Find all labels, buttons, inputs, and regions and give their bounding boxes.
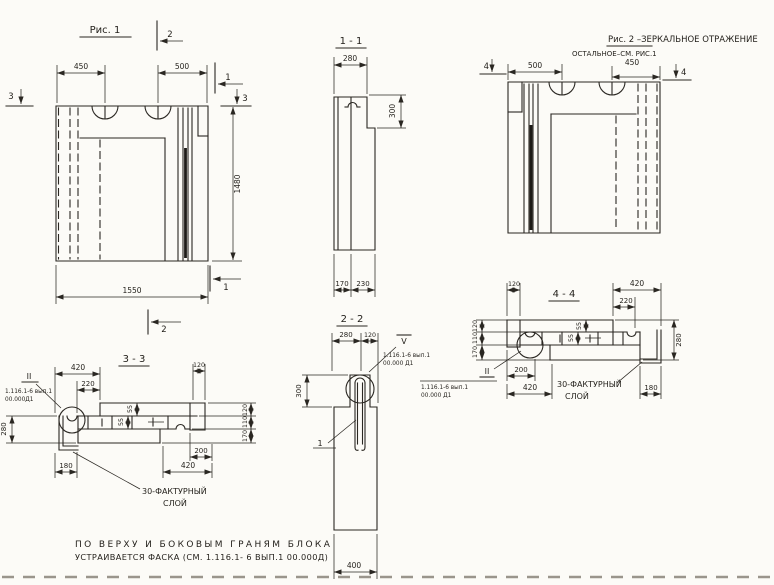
technical-drawing: Рис. 1 2 450 500 1 3 3 [0,0,774,585]
facing-layer-label: СЛОЙ [565,390,589,401]
dim-170-left: 170 [472,346,479,358]
section-label-3-left: 3 [8,92,13,102]
sec11-title: 1 - 1 [340,36,363,47]
groove-notch [176,425,185,430]
section-1-1: 1 - 1 280 300 170 230 [334,36,406,297]
dim-280-right: 280 [675,333,683,346]
loop-hook [362,447,365,450]
fig2-title: Рис. 2 –ЗЕРКАЛЬНОЕ ОТРАЖЕНИЕ [608,35,758,45]
leader-line [369,347,396,372]
corner-return-inner [640,330,657,359]
dim-420-top: 420 [630,279,645,288]
dim-420-top: 420 [71,363,86,372]
dim-55a: 55 [127,405,134,413]
fig2-mirrored-view: Рис. 2 –ЗЕРКАЛЬНОЕ ОТРАЖЕНИЕ ОСТАЛЬНОЕ–С… [480,35,758,233]
section-4-4: 4 - 4 120 420 220 [420,279,683,401]
dim-120-top: 120 [508,281,520,288]
section-label-2-top: 2 [167,30,172,40]
chamfer-note: ПО ВЕРХУ И БОКОВЫМ ГРАНЯМ БЛОКА УСТРАИВА… [75,540,332,562]
corner-return [640,330,661,363]
dim-180: 180 [644,384,657,392]
ref-text: 1.116.1-6 вып.1 [421,385,468,391]
blueprint-page: Рис. 1 2 450 500 1 3 3 [0,0,774,585]
dim-220: 220 [81,380,94,388]
dim-450: 450 [625,58,640,67]
sec22-title: 2 - 2 [341,314,364,325]
dim-280-left: 280 [0,422,8,435]
dim-280: 280 [343,54,358,63]
dim-55b: 55 [568,334,575,342]
dim-450: 450 [74,62,89,71]
facing-layer-label: 30-ФАКТУРНЫЙ [557,378,622,389]
fig2-subtitle: ОСТАЛЬНОЕ–СМ. РИС.1 [572,50,657,58]
sec44-title: 4 - 4 [553,289,576,300]
dim-55a: 55 [576,322,583,330]
dim-120-left: 120 [472,320,479,332]
dim-1550: 1550 [122,286,141,295]
detail-marker-II: II [27,372,32,381]
sec33-title: 3 - 3 [123,354,146,365]
section-profile [334,97,375,250]
section-label-4-left: 4 [484,62,489,72]
pos-label-1: 1 [317,439,322,448]
loop-hook [355,447,358,450]
section-label-3-right: 3 [242,94,247,104]
detail-marker-V: V [401,337,407,346]
dim-420-bottom: 420 [181,461,196,470]
dim-230: 230 [356,280,369,288]
section-label-2-bottom: 2 [161,325,166,335]
leader-line [73,452,140,489]
dim-500: 500 [175,62,190,71]
dim-280: 280 [339,331,352,339]
section-label-1-bottom: 1 [223,283,228,293]
dim-500: 500 [528,61,543,70]
dim-120-right: 120 [242,404,249,416]
lifting-loop [355,378,365,383]
facing-layer-label: СЛОЙ [163,497,187,508]
ref-text: 1.116.1-6 вып.1 [5,389,52,395]
dim-1480: 1480 [233,174,242,193]
ref-text: 1.116.1-6 вып.1 [383,353,430,359]
detail-marker-II: II [485,367,490,376]
dim-220: 220 [619,297,632,305]
ref-text: 00.000 Д1 [421,393,452,399]
note-line-2: УСТРАИВАЕТСЯ ФАСКА (СМ. 1.116.1- 6 ВЫП.1… [75,552,328,562]
dim-55b: 55 [118,418,125,426]
dim-110-right: 110 [242,416,249,428]
dim-200: 200 [194,447,207,455]
facing-layer-label: 30-ФАКТУРНЫЙ [142,485,207,496]
dim-300: 300 [295,384,303,397]
dim-200: 200 [514,366,527,374]
dim-110-left: 110 [472,332,479,344]
section-label-4-right: 4 [681,68,686,78]
ref-text: 00.000Д1 [5,397,34,403]
section-3-3: 3 - 3 420 220 120 [0,354,256,508]
dim-400: 400 [347,561,362,570]
groove-notch [627,332,636,337]
dim-170: 170 [335,280,348,288]
ref-text: 00.000 Д1 [383,361,414,367]
dim-300: 300 [388,104,397,119]
dim-120: 120 [364,332,376,339]
leader-line [328,420,356,443]
leader-line [36,384,61,408]
dim-180: 180 [59,462,72,470]
joint-groove [67,416,77,421]
section-label-1-topright: 1 [225,73,230,83]
fig1-title: Рис. 1 [90,25,121,36]
dim-170-right: 170 [242,430,249,442]
dim-420-bottom: 420 [523,383,538,392]
note-line-1: ПО ВЕРХУ И БОКОВЫМ ГРАНЯМ БЛОКА [75,540,332,550]
fig1-front-view: Рис. 1 2 450 500 1 3 3 [6,21,251,335]
lifting-loop-icon [348,103,357,108]
dim-120-top: 120 [193,362,205,369]
